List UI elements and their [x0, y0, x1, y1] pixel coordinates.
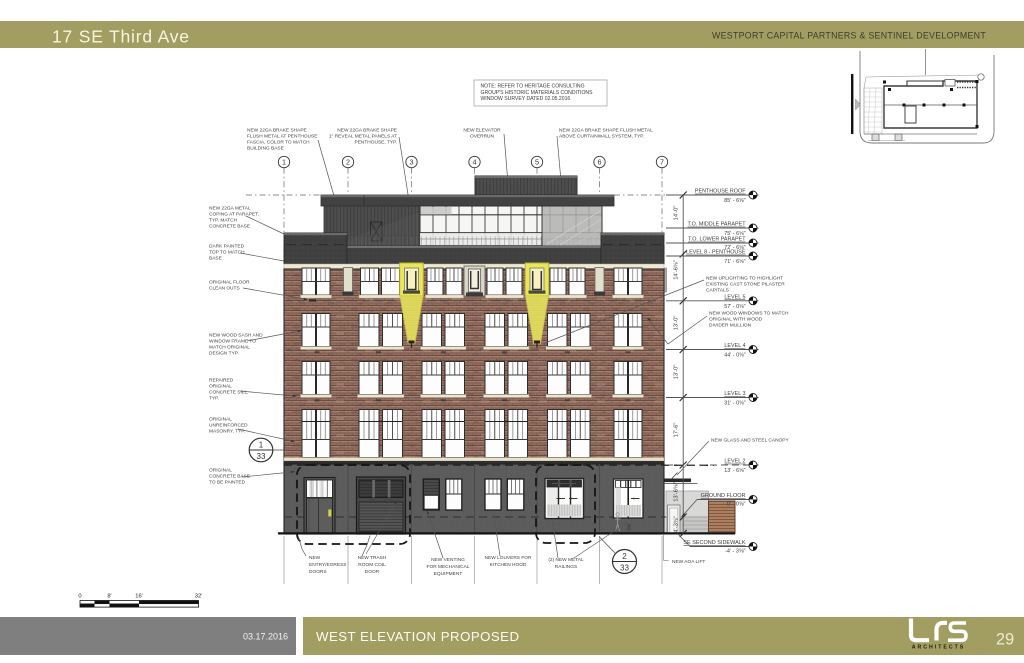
svg-text:NEW 22GA BRAKE SHAPE: NEW 22GA BRAKE SHAPE [247, 128, 307, 134]
svg-text:BASE: BASE [209, 256, 222, 262]
svg-text:14'-0": 14'-0" [674, 206, 680, 221]
svg-text:03.17.2016: 03.17.2016 [243, 632, 288, 642]
svg-text:WESTPORT CAPITAL PARTNERS & SE: WESTPORT CAPITAL PARTNERS & SENTINEL DEV… [712, 31, 986, 41]
svg-text:-4' - 3⅝": -4' - 3⅝" [725, 549, 745, 555]
svg-text:ORIGINAL: ORIGINAL [209, 384, 232, 390]
svg-text:EQUIPMENT: EQUIPMENT [434, 571, 463, 577]
svg-text:WINDOW SURVEY DATED 02.05.2016: WINDOW SURVEY DATED 02.05.2016 [481, 96, 571, 102]
svg-text:NEW 22GA METAL: NEW 22GA METAL [209, 206, 251, 212]
svg-text:2: 2 [622, 552, 627, 561]
svg-text:13'-0": 13'-0" [674, 316, 680, 331]
svg-text:LEVEL 2: LEVEL 2 [724, 459, 745, 465]
svg-text:NOTE: REFER TO HERITAGE CONSUL: NOTE: REFER TO HERITAGE CONSULTING [481, 84, 585, 90]
svg-text:LEVEL 8 - PENTHOUSE: LEVEL 8 - PENTHOUSE [686, 250, 746, 256]
svg-text:NEW VENTING: NEW VENTING [431, 557, 465, 563]
svg-text:PENTHOUSE ROOF: PENTHOUSE ROOF [695, 189, 746, 195]
svg-text:33: 33 [257, 452, 266, 461]
svg-text:DIVIDER MULLION: DIVIDER MULLION [709, 323, 752, 329]
svg-text:NEW 22GA BRAKE SHAPE: NEW 22GA BRAKE SHAPE [337, 128, 397, 134]
svg-text:17'-6": 17'-6" [674, 423, 680, 438]
svg-text:13'-0": 13'-0" [674, 365, 680, 380]
svg-text:ORIGINAL FLOOR: ORIGINAL FLOOR [209, 280, 250, 286]
svg-text:33: 33 [620, 563, 629, 572]
svg-text:4'-3⅝": 4'-3⅝" [674, 516, 680, 532]
svg-text:SE SECOND SIDEWALK: SE SECOND SIDEWALK [683, 540, 745, 546]
svg-text:DOORS: DOORS [309, 569, 327, 575]
svg-text:16': 16' [135, 594, 143, 600]
svg-text:ROOM COIL: ROOM COIL [358, 562, 386, 568]
svg-text:1: 1 [282, 158, 286, 167]
svg-text:T.O. MIDDLE PARAPET: T.O. MIDDLE PARAPET [687, 222, 746, 228]
svg-text:TYP. MATCH: TYP. MATCH [209, 218, 238, 224]
svg-text:EXISTING CAST STONE PILASTER: EXISTING CAST STONE PILASTER [706, 282, 785, 288]
svg-text:32': 32' [195, 594, 203, 600]
svg-text:8': 8' [107, 594, 111, 600]
svg-text:ORIGINAL WITH WOOD: ORIGINAL WITH WOOD [709, 317, 763, 323]
svg-text:ENTRY/EGRESS: ENTRY/EGRESS [309, 562, 347, 568]
svg-text:NEW: NEW [309, 555, 321, 561]
svg-text:NEW GLASS AND STEEL CANOPY: NEW GLASS AND STEEL CANOPY [711, 438, 789, 444]
svg-text:FLUSH METAL AT PENTHOUSE: FLUSH METAL AT PENTHOUSE [247, 134, 317, 140]
svg-text:NEW LOUVERS FOR: NEW LOUVERS FOR [485, 555, 532, 561]
svg-text:1" REVEAL METAL PANELS AT: 1" REVEAL METAL PANELS AT [329, 134, 397, 140]
svg-text:TOP TO MATCH: TOP TO MATCH [209, 250, 245, 256]
svg-text:CONCRETE BASE: CONCRETE BASE [209, 224, 250, 230]
svg-text:LEVEL 3: LEVEL 3 [724, 391, 745, 397]
svg-text:13' - 6⅝": 13' - 6⅝" [724, 468, 745, 474]
svg-text:44' - 0⅝": 44' - 0⅝" [724, 353, 745, 359]
svg-text:85' - 6⅝": 85' - 6⅝" [724, 198, 745, 204]
svg-text:LEVEL 5: LEVEL 5 [724, 295, 745, 301]
svg-text:2: 2 [346, 158, 350, 167]
svg-text:NEW WOOD WINDOWS TO MATCH: NEW WOOD WINDOWS TO MATCH [709, 311, 789, 317]
svg-text:BUILDING BASE: BUILDING BASE [247, 146, 284, 152]
svg-text:DARK PAINTED: DARK PAINTED [209, 244, 245, 250]
svg-text:GROUND FLOOR: GROUND FLOOR [701, 493, 746, 499]
svg-text:6: 6 [598, 158, 602, 167]
svg-text:5: 5 [535, 158, 539, 167]
svg-text:NEW WOOD SASH AND: NEW WOOD SASH AND [209, 333, 263, 339]
svg-text:DOOR: DOOR [365, 569, 380, 575]
svg-text:T.O. LOWER PARAPET: T.O. LOWER PARAPET [688, 237, 746, 243]
svg-text:29: 29 [996, 631, 1014, 649]
svg-text:COPING AT PARAPET,: COPING AT PARAPET, [209, 212, 259, 218]
svg-text:GROUP'S HISTORIC MATERIALS CON: GROUP'S HISTORIC MATERIALS CONDITIONS [481, 90, 594, 96]
svg-text:DESIGN TYP.: DESIGN TYP. [209, 351, 239, 357]
svg-text:MATCH ORIGINAL: MATCH ORIGINAL [209, 345, 250, 351]
svg-text:(2) NEW METAL: (2) NEW METAL [548, 557, 584, 563]
svg-text:3: 3 [410, 158, 414, 167]
svg-text:UNREINFORCED: UNREINFORCED [209, 423, 248, 429]
svg-text:57' - 0⅝": 57' - 0⅝" [724, 304, 745, 310]
svg-text:OVERRUN: OVERRUN [470, 134, 495, 140]
svg-text:TO BE PAINTED: TO BE PAINTED [209, 480, 246, 486]
svg-text:TYP.: TYP. [209, 396, 219, 402]
svg-text:REPAIRED: REPAIRED [209, 378, 234, 384]
svg-text:ABOVE CURTAINWALL SYSTEM, TYP.: ABOVE CURTAINWALL SYSTEM, TYP. [559, 134, 644, 140]
svg-text:4: 4 [473, 158, 477, 167]
svg-text:71' - 6⅝": 71' - 6⅝" [724, 259, 745, 265]
svg-text:0' - 0⅝": 0' - 0⅝" [727, 502, 746, 508]
svg-text:WEST ELEVATION PROPOSED: WEST ELEVATION PROPOSED [316, 629, 520, 644]
svg-text:WINDOW FRAME TO: WINDOW FRAME TO [209, 339, 256, 345]
svg-text:14'-6⅝": 14'-6⅝" [674, 260, 680, 280]
svg-text:13'-6⅝": 13'-6⅝" [674, 482, 680, 502]
svg-text:NEW AOA LIFT: NEW AOA LIFT [672, 559, 705, 565]
svg-text:FASCIA, COLOR TO MATCH: FASCIA, COLOR TO MATCH [247, 140, 310, 146]
svg-text:PENTHOUSE, TYP.: PENTHOUSE, TYP. [355, 140, 397, 146]
svg-text:NEW ELEVATOR: NEW ELEVATOR [463, 128, 501, 134]
svg-text:7: 7 [660, 158, 664, 167]
svg-text:ORIGINAL: ORIGINAL [209, 417, 232, 423]
svg-text:CLEAN OUTS: CLEAN OUTS [209, 286, 240, 292]
svg-text:LEVEL 4: LEVEL 4 [724, 343, 745, 349]
svg-text:NEW 22GA BRAKE SHAPE FLUSH MET: NEW 22GA BRAKE SHAPE FLUSH METAL [559, 128, 653, 134]
svg-text:KITCHEN HOOD: KITCHEN HOOD [490, 562, 527, 568]
svg-text:FOR MECHANICAL: FOR MECHANICAL [427, 564, 470, 570]
svg-text:17 SE Third Ave: 17 SE Third Ave [52, 27, 190, 47]
svg-text:CONCRETE SILL,: CONCRETE SILL, [209, 390, 248, 396]
svg-text:ARCHITECTS: ARCHITECTS [912, 645, 965, 651]
svg-text:CAPITALS: CAPITALS [706, 288, 729, 294]
svg-text:1: 1 [259, 441, 264, 450]
svg-text:NEW UPLIGHTING TO HIGHLIGHT: NEW UPLIGHTING TO HIGHLIGHT [706, 276, 783, 282]
svg-text:31' - 0⅝": 31' - 0⅝" [724, 401, 745, 407]
svg-text:RAILINGS: RAILINGS [555, 564, 577, 570]
svg-text:ORIGINAL: ORIGINAL [209, 468, 232, 474]
svg-text:0: 0 [78, 594, 81, 600]
